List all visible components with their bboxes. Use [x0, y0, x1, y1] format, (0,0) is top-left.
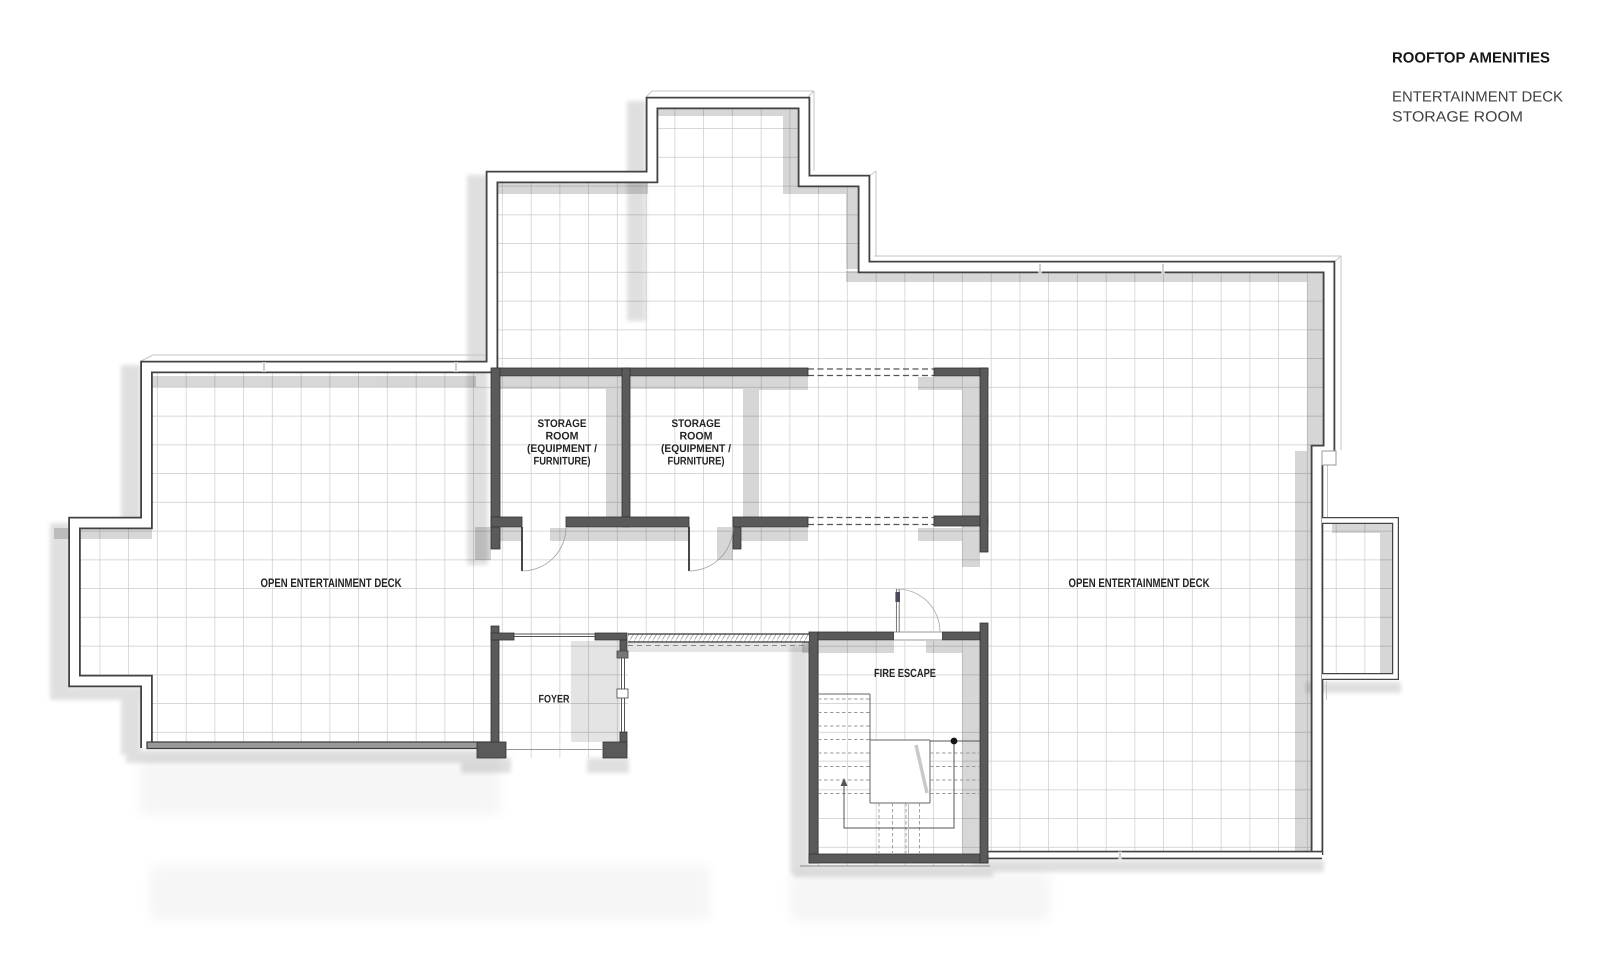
- svg-text:OPEN ENTERTAINMENT DECK: OPEN ENTERTAINMENT DECK: [261, 576, 402, 590]
- svg-text:FOYER: FOYER: [539, 694, 570, 706]
- svg-text:STORAGE: STORAGE: [672, 418, 721, 430]
- svg-text:OPEN ENTERTAINMENT DECK: OPEN ENTERTAINMENT DECK: [1069, 576, 1210, 590]
- svg-text:ENTERTAINMENT DECK: ENTERTAINMENT DECK: [1392, 89, 1563, 105]
- svg-text:STORAGE ROOM: STORAGE ROOM: [1392, 109, 1523, 125]
- svg-text:(EQUIPMENT /: (EQUIPMENT /: [661, 443, 731, 455]
- svg-text:STORAGE: STORAGE: [538, 418, 587, 430]
- svg-text:ROOFTOP AMENITIES: ROOFTOP AMENITIES: [1392, 51, 1550, 67]
- svg-text:FURNITURE): FURNITURE): [668, 456, 725, 468]
- svg-text:(EQUIPMENT /: (EQUIPMENT /: [527, 443, 597, 455]
- svg-text:ROOM: ROOM: [546, 431, 579, 443]
- svg-text:FURNITURE): FURNITURE): [534, 456, 591, 468]
- svg-text:FIRE ESCAPE: FIRE ESCAPE: [874, 666, 936, 680]
- svg-text:ROOM: ROOM: [680, 431, 713, 443]
